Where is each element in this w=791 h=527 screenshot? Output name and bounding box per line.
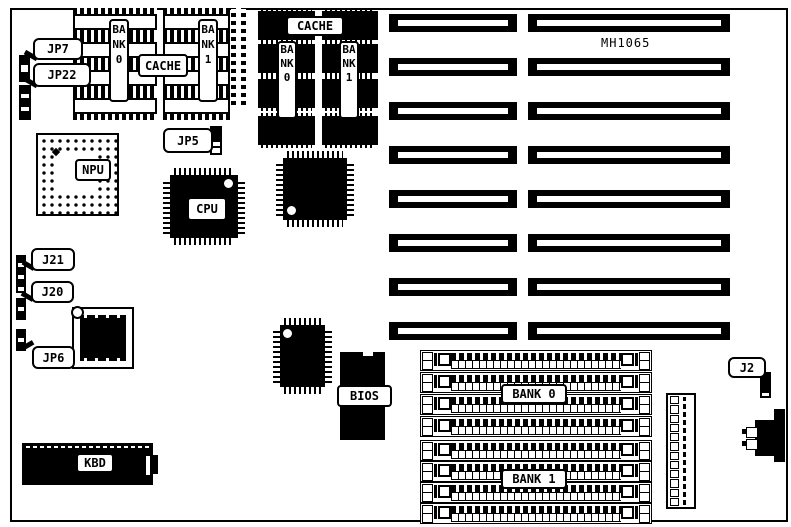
cpu-pins — [174, 168, 234, 175]
power-connector — [666, 393, 696, 509]
cpu-pins — [174, 238, 234, 245]
simm-socket — [420, 350, 652, 371]
pin1-dot-icon — [224, 179, 233, 188]
pin1-dot-icon — [71, 306, 84, 319]
qfp-pins — [325, 329, 332, 383]
isa-slot — [389, 322, 517, 340]
keyboard-din-connector — [774, 409, 785, 462]
motherboard-diagram: BANK0 BANK1 CACHE CACHE BANK0 BANK1 MH10… — [0, 0, 791, 527]
dip-bank0-label: BANK0 — [277, 41, 297, 119]
isa-slot — [528, 278, 730, 296]
callout-jp7: JP7 — [33, 38, 83, 60]
plcc-socket — [72, 307, 134, 369]
isa-slot — [528, 146, 730, 164]
simm-socket — [420, 503, 652, 524]
din-pin — [746, 439, 758, 450]
isa-slot — [528, 322, 730, 340]
connector-pins — [670, 396, 679, 506]
cpu-pins — [238, 179, 245, 234]
chip-notch — [363, 352, 373, 356]
isa-slot — [389, 14, 517, 32]
isa-slot — [528, 14, 730, 32]
qfp-pins — [287, 220, 343, 227]
isa-slot — [528, 58, 730, 76]
simm-socket — [420, 440, 652, 461]
isa-slot — [389, 146, 517, 164]
memory-bank0-label: BANK 0 — [501, 384, 567, 404]
header-j20 — [16, 298, 26, 320]
callout-jp5: JP5 — [163, 128, 213, 153]
callout-j21: J21 — [31, 248, 75, 271]
dip-pins — [163, 114, 230, 120]
isa-slot — [528, 190, 730, 208]
dip-bank1-label: BANK1 — [339, 41, 359, 119]
dip-body — [163, 98, 230, 114]
keyboard-din-connector-body — [755, 420, 774, 456]
qfp-pins — [276, 162, 283, 216]
cpu-pins — [163, 179, 170, 234]
isa-slot — [528, 234, 730, 252]
jumper-jp22 — [19, 85, 31, 120]
kbd-tab — [153, 455, 158, 474]
isa-slot — [389, 234, 517, 252]
isa-slot — [389, 278, 517, 296]
connector-key — [683, 397, 686, 505]
isa-slot — [389, 58, 517, 76]
din-pin-tab — [742, 429, 746, 434]
din-pin-tab — [742, 441, 746, 446]
kbd-label: KBD — [76, 453, 114, 473]
pin1-dot-icon — [283, 329, 292, 338]
qfp-pins — [284, 318, 321, 325]
din-pin — [746, 427, 758, 438]
cpu-label: CPU — [187, 197, 227, 221]
chipset-qfp-chip — [283, 158, 347, 220]
isa-slot — [389, 102, 517, 120]
cache-dip-chip — [258, 116, 315, 145]
board-model-number: MH1065 — [601, 36, 650, 50]
io-qfp-chip — [280, 325, 325, 387]
callout-jp22: JP22 — [33, 63, 91, 87]
isa-slot — [528, 102, 730, 120]
dip-cache-label: CACHE — [286, 16, 344, 36]
qfp-pins — [287, 151, 343, 158]
qfp-pins — [284, 387, 321, 394]
isa-slot — [389, 190, 517, 208]
callout-j2: J2 — [728, 357, 766, 378]
npu-label: NPU — [75, 159, 111, 181]
sram-cache-label: CACHE — [138, 54, 188, 77]
bios-label: BIOS — [337, 385, 392, 407]
qfp-pins — [273, 329, 280, 383]
memory-bank1-label: BANK 1 — [501, 469, 567, 489]
sram-bank0-label: BANK0 — [109, 19, 129, 102]
dip-body — [163, 14, 230, 30]
chip-notch — [146, 456, 150, 475]
sram-bank1-label: BANK1 — [198, 19, 218, 102]
cache-dip-chip — [322, 116, 378, 145]
dip-pins — [73, 114, 157, 120]
vertical-dip-chip — [231, 8, 246, 105]
qfp-pins — [347, 162, 354, 216]
callout-jp6: JP6 — [32, 346, 75, 369]
plcc-chip — [80, 315, 126, 361]
callout-j20: J20 — [31, 281, 74, 303]
pin1-dot-icon — [287, 206, 296, 215]
simm-socket — [420, 416, 652, 437]
kbd-pins — [26, 446, 149, 448]
